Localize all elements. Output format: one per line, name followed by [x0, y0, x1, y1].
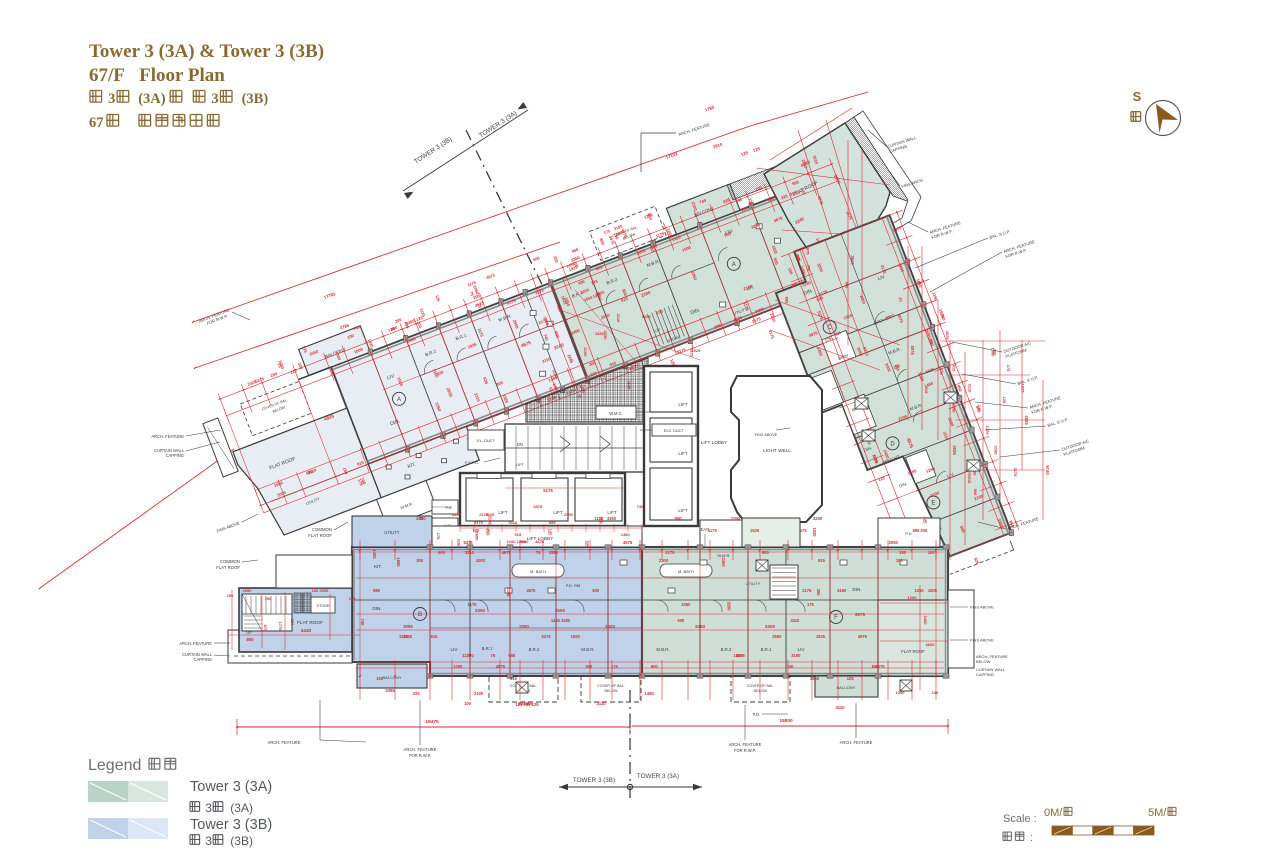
svg-text:(3A): (3A) — [230, 801, 253, 815]
svg-text:2400: 2400 — [561, 618, 571, 623]
svg-text:75: 75 — [491, 653, 496, 658]
svg-text:FOR R.W.P.: FOR R.W.P. — [734, 748, 756, 753]
svg-text:EL. DUCT: EL. DUCT — [477, 438, 495, 443]
svg-text:2100: 2100 — [583, 348, 588, 358]
svg-text:3350: 3350 — [607, 516, 617, 521]
svg-text:4975: 4975 — [858, 634, 868, 639]
svg-text:Legend: Legend — [88, 757, 141, 774]
svg-text:325: 325 — [923, 517, 928, 525]
svg-text:UTILITY: UTILITY — [384, 530, 400, 535]
svg-text:1650: 1650 — [571, 634, 581, 639]
svg-text:2050: 2050 — [681, 602, 691, 607]
svg-text:3110: 3110 — [835, 705, 845, 710]
svg-text:4975: 4975 — [945, 331, 950, 341]
svg-text:1175: 1175 — [708, 528, 718, 533]
svg-text:3200: 3200 — [813, 516, 823, 521]
svg-text:2550: 2550 — [772, 634, 782, 639]
svg-text:M.B.R.: M.B.R. — [581, 647, 594, 652]
svg-text:LIFT: LIFT — [553, 510, 563, 515]
svg-text:3110: 3110 — [509, 520, 518, 525]
svg-text:2050: 2050 — [519, 624, 529, 629]
svg-text:1925: 1925 — [1021, 384, 1026, 394]
svg-text:1475: 1475 — [939, 366, 944, 376]
svg-text:3: 3 — [108, 91, 115, 107]
svg-text:3: 3 — [211, 91, 218, 107]
svg-text:4675: 4675 — [526, 588, 536, 593]
svg-text:2175: 2175 — [802, 588, 812, 593]
svg-text:200: 200 — [920, 528, 928, 533]
svg-text:A: A — [732, 262, 736, 268]
svg-text:600: 600 — [438, 550, 446, 555]
svg-text:150: 150 — [290, 619, 295, 626]
svg-text:175: 175 — [611, 664, 619, 669]
svg-text:W.M.C.: W.M.C. — [609, 411, 622, 416]
svg-text:4675: 4675 — [502, 550, 512, 555]
svg-text:LIV: LIV — [797, 647, 805, 652]
svg-text:2050: 2050 — [243, 588, 253, 593]
svg-text:500: 500 — [592, 588, 600, 593]
svg-text:ARCH. FEATURE: ARCH. FEATURE — [840, 740, 873, 745]
svg-text:(3A): (3A) — [138, 91, 166, 107]
svg-text:3: 3 — [205, 801, 212, 815]
svg-text:5375: 5375 — [542, 634, 552, 639]
svg-text:CAPPING: CAPPING — [166, 453, 184, 458]
svg-text:3110: 3110 — [790, 618, 800, 623]
svg-text:175: 175 — [1006, 365, 1011, 372]
svg-text:LIFT: LIFT — [678, 508, 688, 513]
svg-text:BALCONY: BALCONY — [836, 685, 855, 690]
svg-text:ARCH. FEATURE: ARCH. FEATURE — [729, 742, 762, 747]
svg-text:175: 175 — [800, 528, 808, 533]
svg-text:DIN.: DIN. — [372, 606, 381, 611]
svg-text:TOWER 3 (3A): TOWER 3 (3A) — [637, 773, 679, 780]
svg-text:FLAT ROOF: FLAT ROOF — [901, 649, 925, 654]
svg-text:B.R.1: B.R.1 — [761, 647, 772, 652]
svg-text:(3B): (3B) — [230, 834, 253, 848]
svg-text:STORE: STORE — [316, 604, 329, 608]
svg-text:2100: 2100 — [507, 539, 517, 544]
svg-text:800: 800 — [762, 550, 770, 555]
svg-text:COMMON: COMMON — [220, 559, 240, 564]
svg-text:1775: 1775 — [278, 622, 283, 632]
svg-text:100: 100 — [928, 550, 936, 555]
svg-text:P.D.: P.D. — [753, 712, 760, 717]
svg-text:KIT.: KIT. — [374, 564, 382, 569]
svg-text:3110: 3110 — [465, 550, 475, 555]
svg-text:175: 175 — [807, 602, 815, 607]
svg-text:5175: 5175 — [543, 488, 553, 493]
svg-text:S: S — [1133, 89, 1142, 104]
svg-text:500: 500 — [973, 489, 978, 496]
svg-text:D: D — [890, 441, 895, 447]
svg-text:ARCH. FEATURE: ARCH. FEATURE — [268, 740, 301, 745]
svg-text:300: 300 — [816, 589, 821, 597]
svg-text:DIN.: DIN. — [852, 587, 861, 592]
svg-text:1450: 1450 — [551, 618, 561, 623]
svg-text:UP: UP — [246, 631, 252, 635]
svg-text:1025: 1025 — [812, 527, 817, 537]
svg-text:3160: 3160 — [837, 588, 847, 593]
svg-text:250: 250 — [349, 596, 356, 601]
svg-text:1250: 1250 — [915, 588, 925, 593]
svg-text:740: 740 — [787, 664, 795, 669]
svg-text:3300: 3300 — [765, 624, 776, 629]
svg-text:500: 500 — [585, 664, 593, 669]
svg-text:ELV. DUCT: ELV. DUCT — [664, 428, 685, 433]
svg-text:2100: 2100 — [506, 587, 511, 597]
svg-text:1450: 1450 — [372, 549, 377, 559]
svg-text:600: 600 — [677, 618, 685, 623]
svg-text:1000: 1000 — [991, 348, 996, 358]
svg-text:ARCH. FEATURE: ARCH. FEATURE — [404, 747, 437, 752]
svg-text:CAPPING: CAPPING — [976, 672, 994, 677]
svg-text:1450: 1450 — [621, 532, 631, 537]
svg-text:COVER OF BAL.: COVER OF BAL. — [747, 684, 775, 688]
svg-text:915: 915 — [431, 634, 439, 639]
svg-text:1175: 1175 — [1013, 468, 1018, 477]
svg-text:LIFT: LIFT — [516, 462, 525, 467]
svg-text:5375: 5375 — [463, 540, 473, 545]
svg-text:1475: 1475 — [985, 426, 990, 436]
svg-text:2100: 2100 — [474, 691, 484, 696]
svg-text:M. BATH: M. BATH — [530, 569, 546, 574]
svg-text:150: 150 — [227, 593, 234, 598]
svg-text:1125: 1125 — [736, 653, 746, 658]
svg-text:2550: 2550 — [549, 550, 559, 555]
svg-text:4975: 4975 — [496, 664, 506, 669]
svg-text:Tower 3 (3A) & Tower 3 (3B): Tower 3 (3A) & Tower 3 (3B) — [89, 41, 324, 62]
svg-text:M.B.R.: M.B.R. — [656, 647, 669, 652]
svg-text:15800: 15800 — [779, 718, 793, 724]
svg-text:4975: 4975 — [910, 345, 915, 355]
svg-text:Tower 3 (3B): Tower 3 (3B) — [190, 817, 272, 833]
svg-text:915: 915 — [952, 365, 957, 372]
svg-text:LIGHT WELL: LIGHT WELL — [763, 448, 791, 453]
svg-text:3975: 3975 — [855, 612, 866, 617]
svg-text:3160: 3160 — [487, 515, 492, 525]
svg-text:225: 225 — [585, 541, 590, 549]
svg-text:LIFT: LIFT — [498, 510, 508, 515]
svg-text:FINS ABOVE: FINS ABOVE — [970, 638, 994, 643]
svg-text:1000: 1000 — [476, 558, 486, 563]
svg-text:2400: 2400 — [923, 616, 928, 626]
svg-text:125: 125 — [547, 529, 552, 537]
svg-text:4975: 4975 — [533, 504, 543, 509]
svg-text:E: E — [931, 501, 935, 507]
svg-text:B.R.2: B.R.2 — [529, 647, 540, 652]
svg-text:740: 740 — [977, 405, 982, 412]
svg-text:BELOW: BELOW — [976, 659, 991, 664]
svg-text:685: 685 — [508, 653, 516, 658]
svg-text:FINS ABOVE: FINS ABOVE — [755, 433, 778, 437]
svg-text:915: 915 — [924, 387, 929, 394]
svg-text:130: 130 — [932, 690, 939, 695]
svg-text:2395: 2395 — [385, 688, 395, 693]
svg-text:F: F — [834, 615, 838, 621]
svg-text:1000: 1000 — [928, 588, 938, 593]
svg-text:DN: DN — [517, 442, 523, 447]
svg-text:A: A — [397, 397, 401, 403]
svg-text:CAPPING: CAPPING — [194, 657, 212, 662]
svg-text:3160: 3160 — [457, 539, 462, 549]
svg-text:P.D.: P.D. — [445, 505, 452, 510]
svg-text:3350: 3350 — [403, 634, 413, 639]
svg-text:FLAT ROOF: FLAT ROOF — [297, 620, 323, 625]
svg-text:1000: 1000 — [896, 690, 906, 695]
svg-text:4675: 4675 — [535, 539, 545, 544]
svg-text:740: 740 — [360, 619, 365, 627]
svg-text:5375: 5375 — [690, 348, 695, 358]
svg-text:FOR R.W.P.: FOR R.W.P. — [409, 753, 431, 758]
svg-text:M. BATH: M. BATH — [678, 569, 694, 574]
svg-text:850: 850 — [872, 664, 880, 669]
svg-text:2100: 2100 — [659, 558, 669, 563]
svg-text:B: B — [418, 612, 422, 618]
svg-text:740: 740 — [472, 528, 480, 533]
svg-text:125: 125 — [847, 676, 855, 681]
svg-text:3110: 3110 — [597, 701, 607, 706]
svg-text:685: 685 — [549, 520, 556, 525]
svg-text:F.S.P.D.: F.S.P.D. — [465, 460, 479, 465]
svg-text:2550: 2550 — [952, 404, 957, 414]
svg-text:3350: 3350 — [452, 512, 462, 517]
svg-text:5375: 5375 — [474, 520, 484, 525]
svg-text:2400: 2400 — [721, 557, 726, 567]
svg-text:P.D.: P.D. — [905, 531, 912, 536]
svg-text:200: 200 — [467, 653, 475, 658]
svg-text::: : — [1030, 832, 1033, 844]
svg-text:2550: 2550 — [564, 512, 574, 517]
svg-text:2550: 2550 — [810, 676, 820, 681]
svg-text:850: 850 — [247, 637, 255, 642]
svg-text:TOWER 3 (3B): TOWER 3 (3B) — [573, 777, 615, 784]
svg-text:FLAT ROOF: FLAT ROOF — [216, 565, 240, 570]
svg-text:675: 675 — [263, 625, 268, 632]
svg-text:685: 685 — [373, 588, 381, 593]
svg-text:915: 915 — [967, 477, 972, 484]
svg-text:3110: 3110 — [968, 384, 973, 393]
svg-text:2175: 2175 — [665, 550, 675, 555]
svg-text:225: 225 — [413, 691, 421, 696]
svg-text:Tower 3 (3A): Tower 3 (3A) — [190, 779, 272, 795]
svg-text:B.R.1: B.R.1 — [482, 646, 493, 651]
svg-text:3160: 3160 — [791, 653, 801, 658]
svg-text:3200: 3200 — [642, 314, 652, 319]
svg-text:3200: 3200 — [726, 601, 731, 611]
svg-text:0M/: 0M/ — [1044, 807, 1063, 819]
svg-text:740: 740 — [637, 504, 644, 509]
svg-text:915: 915 — [515, 532, 522, 537]
svg-text:3110: 3110 — [616, 314, 621, 323]
svg-text:B.R.2: B.R.2 — [721, 647, 732, 652]
svg-text:200: 200 — [416, 516, 424, 521]
svg-text:3: 3 — [205, 834, 212, 848]
svg-text:P.D. RM: P.D. RM — [566, 583, 581, 588]
svg-text:ARCH. FEATURE: ARCH. FEATURE — [179, 641, 212, 646]
svg-text:3350: 3350 — [695, 624, 706, 629]
svg-text:(3B): (3B) — [242, 91, 269, 107]
svg-text:4975: 4975 — [623, 540, 633, 545]
svg-text:250: 250 — [486, 529, 491, 537]
svg-text:300: 300 — [416, 558, 424, 563]
svg-text:2050: 2050 — [603, 331, 608, 341]
svg-text:1650: 1650 — [396, 557, 401, 567]
svg-text:1925: 1925 — [816, 634, 826, 639]
svg-text:685: 685 — [785, 297, 790, 304]
svg-text:1250: 1250 — [517, 539, 527, 544]
svg-text:ARCH. FEATURE: ARCH. FEATURE — [151, 434, 184, 439]
svg-text:3160: 3160 — [993, 446, 998, 456]
svg-text:LIFT: LIFT — [607, 510, 617, 515]
svg-text:4925: 4925 — [952, 445, 957, 455]
svg-text:800: 800 — [845, 282, 850, 289]
svg-text:175: 175 — [436, 533, 441, 540]
svg-text:75: 75 — [536, 550, 541, 555]
svg-text:1925: 1925 — [750, 528, 760, 533]
svg-text:67: 67 — [89, 115, 104, 131]
svg-text:3350: 3350 — [475, 608, 486, 613]
svg-text:150 2055: 150 2055 — [312, 588, 329, 593]
svg-text:600: 600 — [651, 664, 659, 669]
svg-text:4925: 4925 — [1024, 415, 1029, 425]
svg-text:2550: 2550 — [555, 608, 566, 613]
svg-text:1125: 1125 — [594, 516, 604, 521]
svg-text:19475: 19475 — [425, 719, 439, 725]
svg-text:2050: 2050 — [889, 540, 899, 545]
svg-text:685: 685 — [913, 528, 921, 533]
svg-text:BELOW: BELOW — [605, 689, 619, 693]
svg-text:COVER OF BAL.: COVER OF BAL. — [597, 684, 625, 688]
svg-text:125 785 125: 125 785 125 — [515, 702, 539, 707]
svg-text:3600: 3600 — [926, 642, 936, 647]
svg-text:5740: 5740 — [1045, 465, 1050, 475]
svg-text:4675: 4675 — [806, 246, 811, 256]
svg-text:FINS ABOVE: FINS ABOVE — [970, 605, 994, 610]
svg-text:150: 150 — [265, 596, 272, 601]
svg-text:915: 915 — [818, 558, 826, 563]
svg-text:1175: 1175 — [468, 602, 478, 607]
svg-text:150: 150 — [376, 676, 384, 681]
svg-text:COMMON: COMMON — [312, 527, 332, 532]
svg-text:3300: 3300 — [605, 624, 616, 629]
svg-text:1450: 1450 — [595, 331, 605, 336]
svg-text:4440: 4440 — [301, 628, 312, 633]
svg-text:5M/: 5M/ — [1148, 807, 1167, 819]
svg-text:3085: 3085 — [403, 624, 413, 629]
svg-text:FLAT ROOF: FLAT ROOF — [308, 533, 332, 538]
svg-text:3540: 3540 — [850, 255, 855, 265]
svg-text:BELOW: BELOW — [754, 689, 768, 693]
svg-text:1250: 1250 — [453, 664, 463, 669]
svg-text:LIFT: LIFT — [678, 451, 688, 456]
svg-text:100: 100 — [464, 701, 472, 706]
svg-text:LIV: LIV — [450, 647, 458, 652]
svg-text:1200: 1200 — [908, 595, 918, 600]
svg-text:150: 150 — [899, 550, 907, 555]
svg-text:1250: 1250 — [731, 516, 741, 521]
svg-text:915: 915 — [510, 676, 518, 681]
svg-text:LIFT: LIFT — [678, 402, 688, 407]
svg-text:950: 950 — [675, 516, 683, 521]
svg-text:BALCONY: BALCONY — [382, 675, 401, 680]
svg-text:LIFT LOBBY: LIFT LOBBY — [701, 440, 728, 445]
svg-text:Scale :: Scale : — [1003, 813, 1037, 825]
svg-text:1450: 1450 — [645, 691, 655, 696]
svg-text:100: 100 — [896, 558, 904, 563]
svg-text:67/F Floor Plan: 67/F Floor Plan — [89, 65, 225, 86]
svg-text:125: 125 — [1002, 397, 1007, 404]
